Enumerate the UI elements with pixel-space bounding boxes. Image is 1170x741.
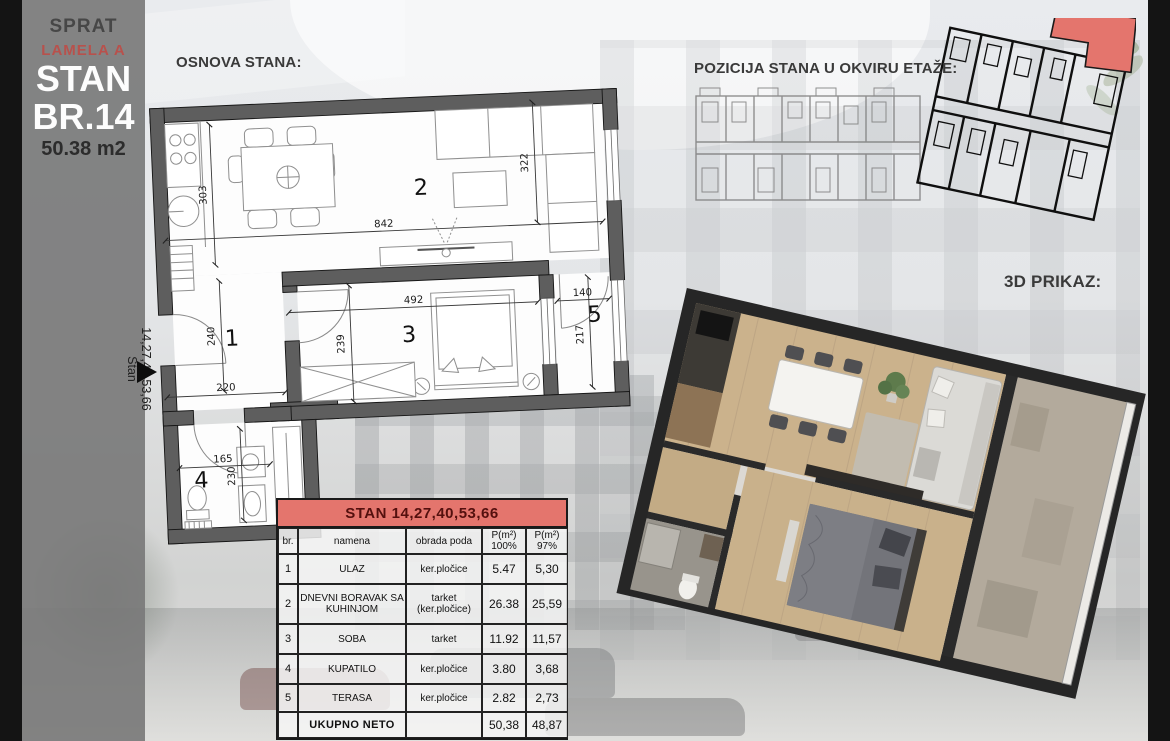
dim-230: 230 <box>226 466 238 486</box>
room-label-1: 1 <box>224 325 239 352</box>
area-table-grid: br. namena obrada poda P(m²) 100% P(m²) … <box>276 528 568 740</box>
table-row-cell: 5 <box>278 684 298 712</box>
total-row-empty <box>278 712 298 738</box>
area-table-title: STAN 14,27,40,53,66 <box>276 498 568 528</box>
table-row-cell: ker.pločice <box>406 684 482 712</box>
etage-title: POZICIJA STANA U OKVIRU ETAŽE: <box>694 60 958 77</box>
wardrobe <box>300 362 415 402</box>
table-row-cell: TERASA <box>298 684 406 712</box>
col-header-p97-unit: P(m²) <box>535 530 560 541</box>
table-row-cell: KUPATILO <box>298 654 406 684</box>
dim-303: 303 <box>198 185 210 205</box>
table-row-cell: tarket (ker.pločice) <box>406 584 482 624</box>
dim-239: 239 <box>336 334 348 354</box>
etage-left-wing <box>696 88 920 200</box>
table-row-cell: 1 <box>278 554 298 584</box>
table-row-cell: 11.92 <box>482 624 526 654</box>
col-header-p100-pct: 100% <box>491 541 517 552</box>
entry-arrow-icon <box>137 361 157 383</box>
col-header-obrada: obrada poda <box>406 528 482 554</box>
dim-842: 842 <box>374 219 394 231</box>
dim-322: 322 <box>519 153 531 173</box>
total-row-label: UKUPNO NETO <box>298 712 406 738</box>
total-row-p100: 50,38 <box>482 712 526 738</box>
table-row-cell: 3,68 <box>526 654 568 684</box>
dim-220: 220 <box>216 382 236 394</box>
floor-label: SPRAT <box>22 16 145 38</box>
apartment-area: 50.38 m2 <box>22 138 145 161</box>
dim-140: 140 <box>572 287 592 299</box>
table-row-cell: DNEVNI BORAVAK SA KUHINJOM <box>298 584 406 624</box>
table-row-cell: 5,30 <box>526 554 568 584</box>
table-row-cell: 2,73 <box>526 684 568 712</box>
total-row-p97: 48,87 <box>526 712 568 738</box>
room-label-3: 3 <box>401 322 416 349</box>
table-row-cell: SOBA <box>298 624 406 654</box>
render3d-image <box>585 265 1170 741</box>
col-header-br: br. <box>278 528 298 554</box>
col-header-p97: P(m²) 97% <box>526 528 568 554</box>
lamela-label: LAMELA A <box>22 42 145 59</box>
etage-right-wing <box>917 18 1136 221</box>
room-label-4: 4 <box>194 467 209 494</box>
apartment-label: STAN <box>22 60 145 98</box>
area-table: STAN 14,27,40,53,66 br. namena obrada po… <box>276 498 568 740</box>
col-header-p97-pct: 97% <box>537 541 557 552</box>
table-row-cell: 5.47 <box>482 554 526 584</box>
dim-217: 217 <box>575 325 587 345</box>
table-row-cell: 3.80 <box>482 654 526 684</box>
table-row-cell: 2.82 <box>482 684 526 712</box>
table-row-cell: 25,59 <box>526 584 568 624</box>
floor-plan-title: OSNOVA STANA: <box>176 54 302 71</box>
room-label-2: 2 <box>413 174 428 201</box>
floor-plan: 303 842 322 240 220 239 492 140 217 165 … <box>138 75 658 556</box>
dim-492: 492 <box>404 295 424 307</box>
col-header-namena: namena <box>298 528 406 554</box>
total-row-empty <box>406 712 482 738</box>
table-row-cell: ker.pločice <box>406 554 482 584</box>
coffee-table <box>453 171 507 208</box>
dim-240: 240 <box>206 326 218 346</box>
table-row-cell: 11,57 <box>526 624 568 654</box>
col-header-p100: P(m²) 100% <box>482 528 526 554</box>
brochure-page: 303 842 322 240 220 239 492 140 217 165 … <box>0 0 1170 741</box>
col-header-p100-unit: P(m²) <box>492 530 517 541</box>
table-row-cell: ker.pločice <box>406 654 482 684</box>
apartment-number: BR.14 <box>22 98 145 136</box>
table-row-cell: 4 <box>278 654 298 684</box>
left-frame-strip <box>0 0 22 741</box>
room-label-5: 5 <box>587 301 602 328</box>
table-row-cell: ULAZ <box>298 554 406 584</box>
render3d-title: 3D PRIKAZ: <box>1004 272 1101 292</box>
etage-plan <box>688 18 1136 226</box>
table-row-cell: 3 <box>278 624 298 654</box>
dim-165: 165 <box>213 454 233 466</box>
table-row-cell: 26.38 <box>482 584 526 624</box>
table-row-cell: tarket <box>406 624 482 654</box>
right-frame-strip <box>1148 0 1170 741</box>
highlighted-unit <box>1046 18 1136 76</box>
table-row-cell: 2 <box>278 584 298 624</box>
